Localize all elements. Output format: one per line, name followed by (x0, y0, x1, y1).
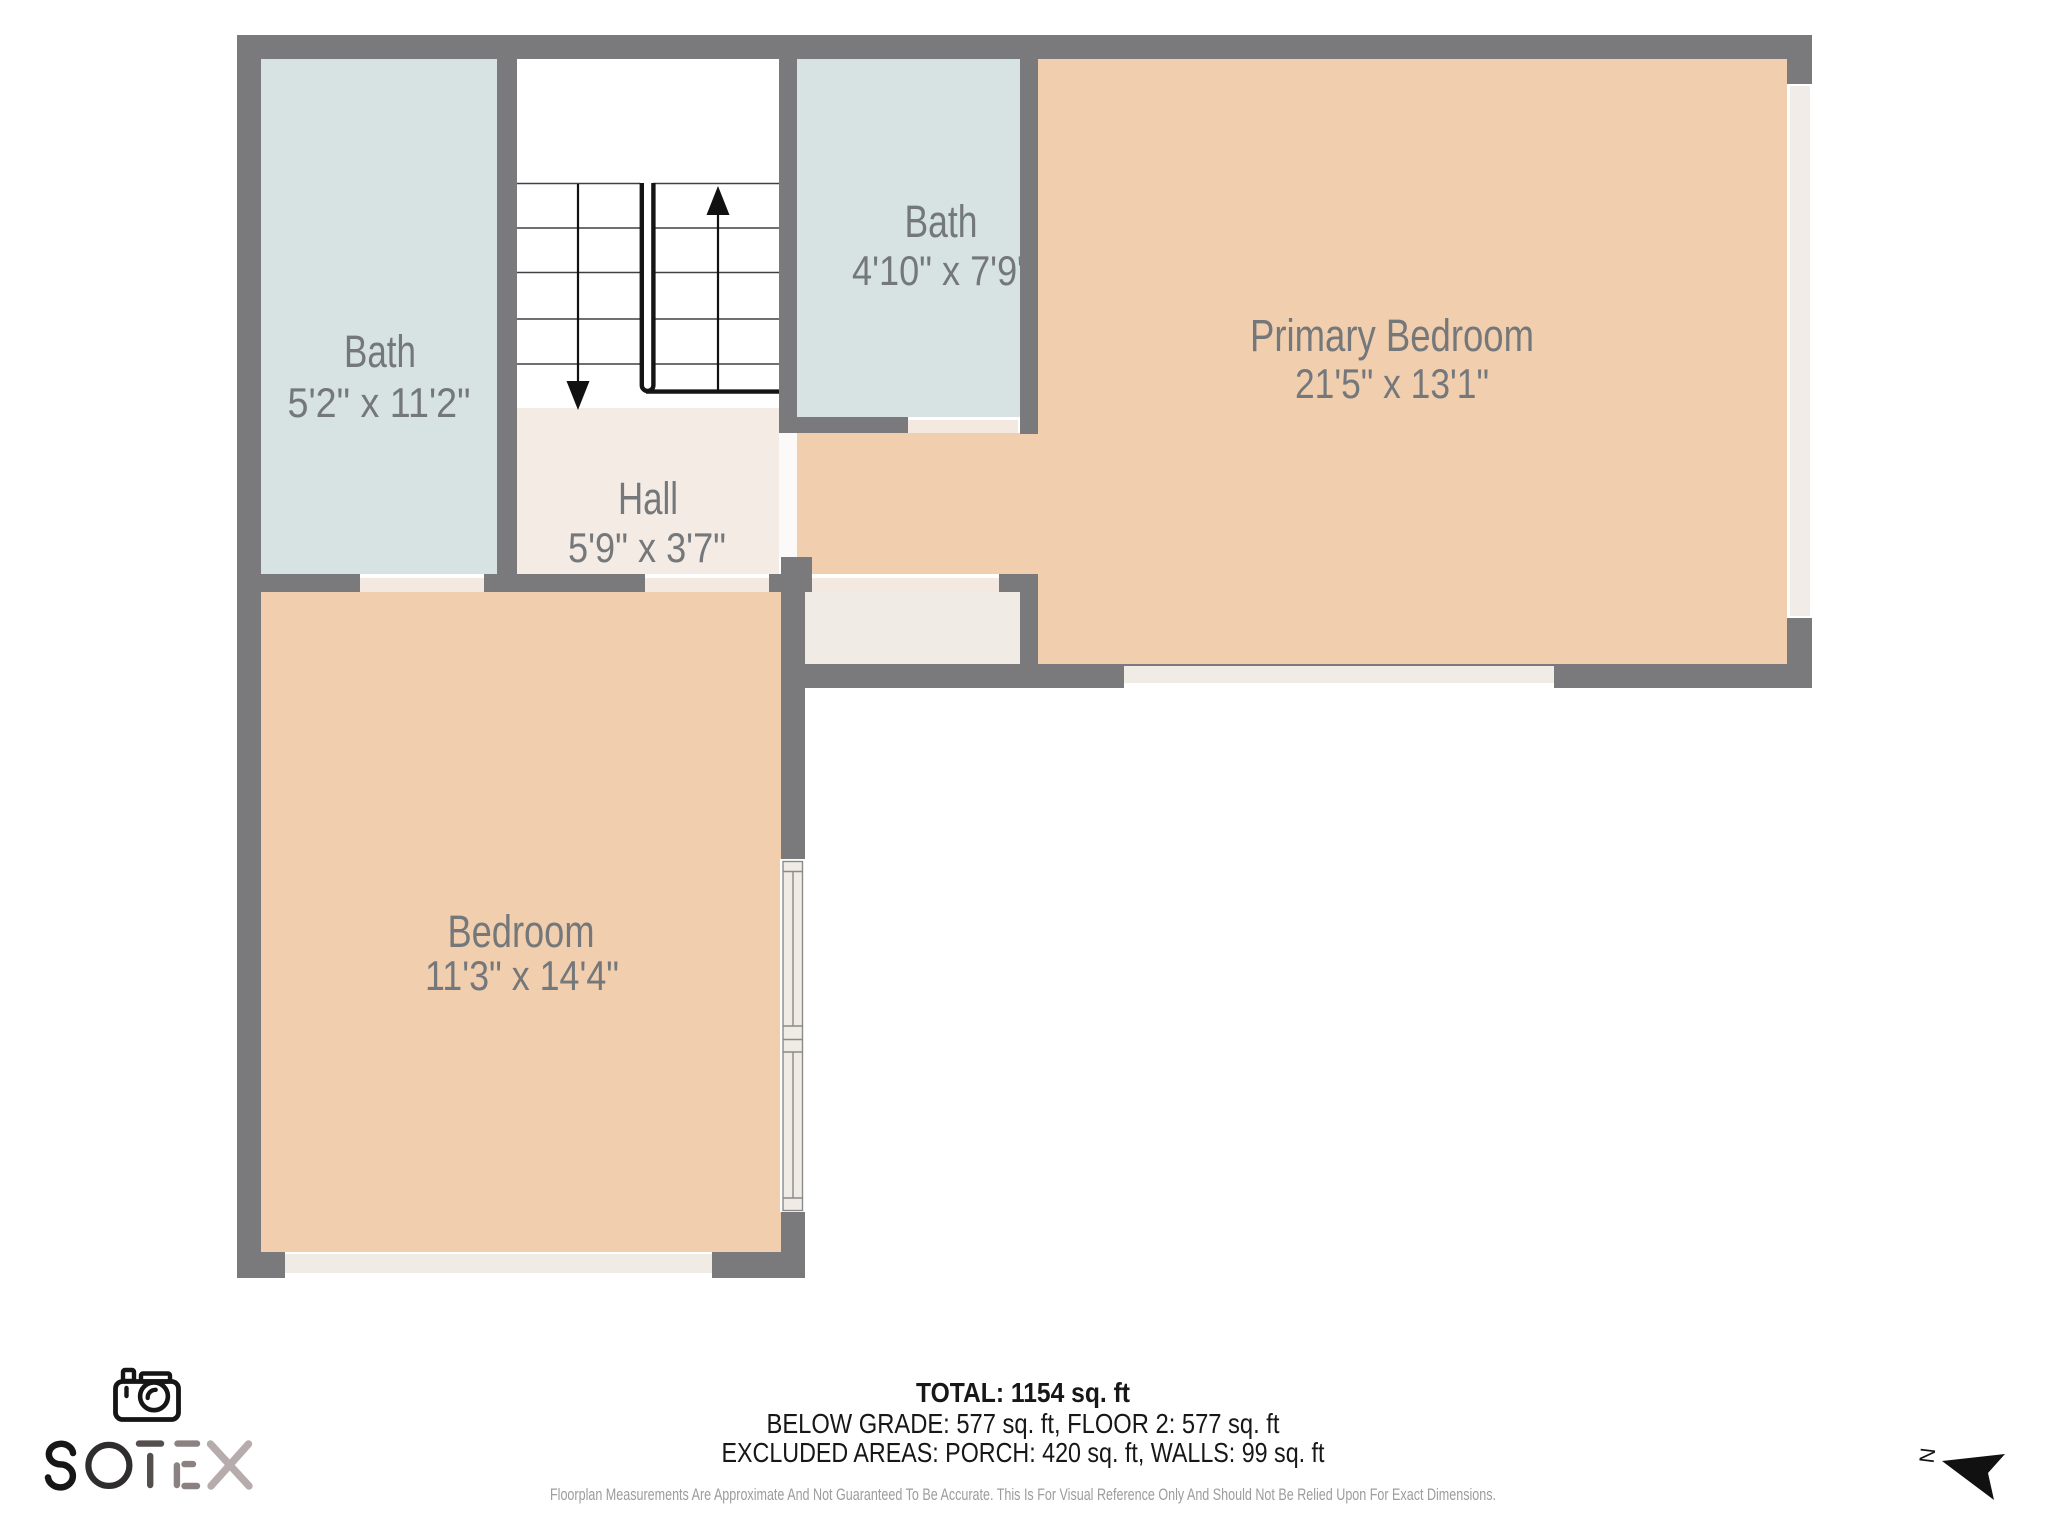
svg-text:Bath: Bath (905, 196, 978, 247)
svg-text:11'3" x 14'4": 11'3" x 14'4" (425, 952, 619, 999)
svg-text:TOTAL: 1154 sq. ft: TOTAL: 1154 sq. ft (916, 1377, 1130, 1408)
svg-text:21'5" x 13'1": 21'5" x 13'1" (1295, 360, 1489, 407)
svg-text:5'9" x 3'7": 5'9" x 3'7" (568, 524, 726, 571)
svg-text:Hall: Hall (618, 473, 678, 524)
svg-text:5'2" x 11'2": 5'2" x 11'2" (288, 379, 471, 426)
svg-text:BELOW GRADE: 577 sq. ft, FLOOR: BELOW GRADE: 577 sq. ft, FLOOR 2: 577 sq… (767, 1408, 1280, 1439)
svg-text:Floorplan Measurements Are App: Floorplan Measurements Are Approximate A… (550, 1485, 1496, 1504)
svg-text:N: N (1914, 1446, 1939, 1464)
svg-text:EXCLUDED AREAS: PORCH: 420 sq.: EXCLUDED AREAS: PORCH: 420 sq. ft, WALLS… (722, 1437, 1325, 1468)
svg-text:Bedroom: Bedroom (448, 906, 595, 957)
svg-text:Primary Bedroom: Primary Bedroom (1250, 310, 1534, 361)
svg-text:4'10" x 7'9": 4'10" x 7'9" (852, 247, 1030, 294)
svg-text:Bath: Bath (344, 326, 416, 377)
